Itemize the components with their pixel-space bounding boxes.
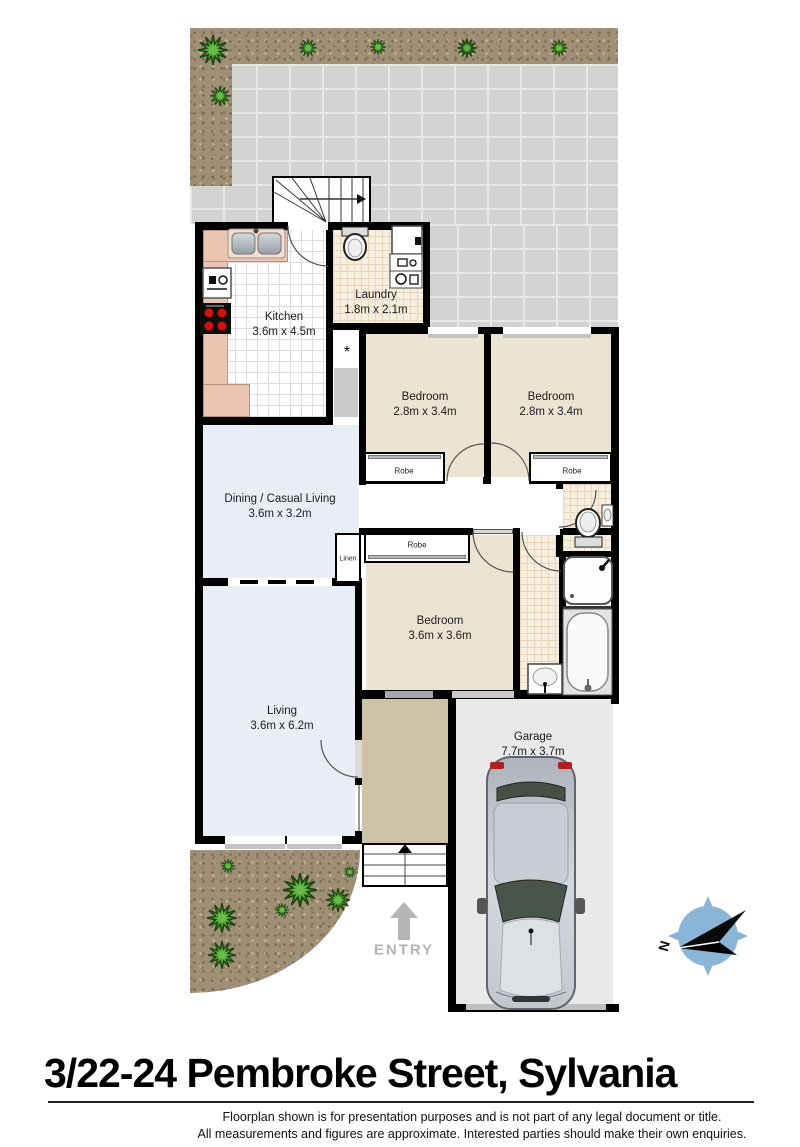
robe-bedroom3-rail xyxy=(368,555,466,559)
entry-sidelight-mullion xyxy=(358,785,360,831)
robe-bedroom1-rail xyxy=(368,455,441,459)
ceiling-break-dash xyxy=(296,580,314,584)
label-bedroom1: Bedroom 2.8m x 3.4m xyxy=(393,390,456,420)
bedroom1-door-opening xyxy=(445,477,483,484)
label-living: Living 3.6m x 6.2m xyxy=(250,704,313,734)
bedroom2-door-opening xyxy=(491,477,529,484)
living-window-right xyxy=(287,836,342,844)
room-name: Living xyxy=(250,704,313,719)
inner-lobby-threshold xyxy=(334,368,358,417)
page-title: 3/22-24 Pembroke Street, Sylvania xyxy=(44,1050,676,1097)
disclaimer-line1: Floorplan shown is for presentation purp… xyxy=(100,1109,800,1126)
wc-floor xyxy=(563,484,611,551)
bedroom3-door-leaf xyxy=(473,529,513,534)
courtyard-paving-upper xyxy=(190,64,618,224)
robe-bedroom2-rail xyxy=(533,455,608,459)
label-linen: Linen xyxy=(339,556,356,563)
garage-door xyxy=(466,1004,606,1010)
kitchen-counter-top xyxy=(203,230,288,262)
room-name: Bedroom xyxy=(519,390,582,405)
room-name: Laundry xyxy=(344,288,407,303)
ceiling-break-dash xyxy=(240,580,258,584)
wall xyxy=(195,222,203,843)
room-dims: 3.6m x 6.2m xyxy=(250,719,313,734)
title-rule xyxy=(48,1101,754,1103)
floorplan-canvas: * xyxy=(0,0,800,1147)
room-name: Dining / Casual Living xyxy=(224,492,335,507)
garage-entry-threshold xyxy=(452,691,514,698)
front-door-threshold xyxy=(355,740,362,778)
living-window-left xyxy=(225,836,285,844)
bedroom3-rear-window-sill xyxy=(385,691,433,698)
bathroom-door-opening xyxy=(520,528,560,535)
room-name: Bedroom xyxy=(393,390,456,405)
wall xyxy=(563,606,611,609)
bedroom2-window-sill xyxy=(503,334,591,338)
label-robe3: Robe xyxy=(407,541,426,550)
room-name: Kitchen xyxy=(252,310,315,325)
living-window-sill-right xyxy=(287,844,342,849)
room-dims: 3.6m x 4.5m xyxy=(252,325,315,340)
label-robe2: Robe xyxy=(562,467,581,476)
kitchen-door-opening xyxy=(288,222,328,230)
wall xyxy=(513,528,520,697)
wall xyxy=(195,417,333,425)
bathroom-fixture-zone xyxy=(559,551,611,690)
label-dining: Dining / Casual Living 3.6m x 3.2m xyxy=(224,492,335,522)
entry-stairs xyxy=(362,843,448,887)
courtyard-paving-right xyxy=(424,224,618,327)
wc-door-opening xyxy=(556,489,563,529)
wall xyxy=(611,327,619,704)
wall xyxy=(484,334,491,484)
bedroom1-window xyxy=(428,327,478,334)
room-dims: 2.8m x 3.4m xyxy=(393,405,456,420)
disclaimer: Floorplan shown is for presentation purp… xyxy=(100,1109,800,1142)
room-name: Garage xyxy=(501,730,564,745)
exterior-stairs xyxy=(272,176,371,224)
room-name: Bedroom xyxy=(408,614,471,629)
compass-north-label: N xyxy=(655,939,673,953)
room-dims: 2.8m x 3.4m xyxy=(519,405,582,420)
living-window-sill-left xyxy=(225,844,285,849)
room-dims: 3.6m x 3.2m xyxy=(224,507,335,522)
label-robe1: Robe xyxy=(394,467,413,476)
kitchen-counter-corner xyxy=(203,384,250,417)
wall xyxy=(448,697,456,1012)
wall xyxy=(559,551,618,557)
label-bedroom3: Bedroom 3.6m x 3.6m xyxy=(408,614,471,644)
bedroom1-window-sill xyxy=(428,334,478,338)
label-garage: Garage 7.7m x 3.7m xyxy=(501,730,564,760)
garden-strip-left xyxy=(190,28,232,186)
bathroom-lobby-floor xyxy=(520,535,559,690)
room-dims: 7.7m x 3.7m xyxy=(501,745,564,760)
bedroom2-window xyxy=(503,327,591,334)
room-dims: 1.8m x 2.1m xyxy=(344,303,407,318)
room-dims: 3.6m x 3.6m xyxy=(408,629,471,644)
ceiling-break-dash xyxy=(268,580,286,584)
entry-arrow-icon xyxy=(390,902,418,940)
entry-label: ENTRY xyxy=(374,942,434,959)
garden-strip-top xyxy=(190,28,618,64)
compass-icon: N xyxy=(655,896,748,976)
label-bedroom2: Bedroom 2.8m x 3.4m xyxy=(519,390,582,420)
label-laundry: Laundry 1.8m x 2.1m xyxy=(344,288,407,318)
disclaimer-line2: All measurements and figures are approxi… xyxy=(100,1126,800,1143)
wall xyxy=(423,222,430,330)
label-kitchen: Kitchen 3.6m x 4.5m xyxy=(252,310,315,340)
garden-bottom-left xyxy=(190,850,360,993)
wall xyxy=(559,557,566,697)
entry-hall-floor xyxy=(362,697,448,843)
